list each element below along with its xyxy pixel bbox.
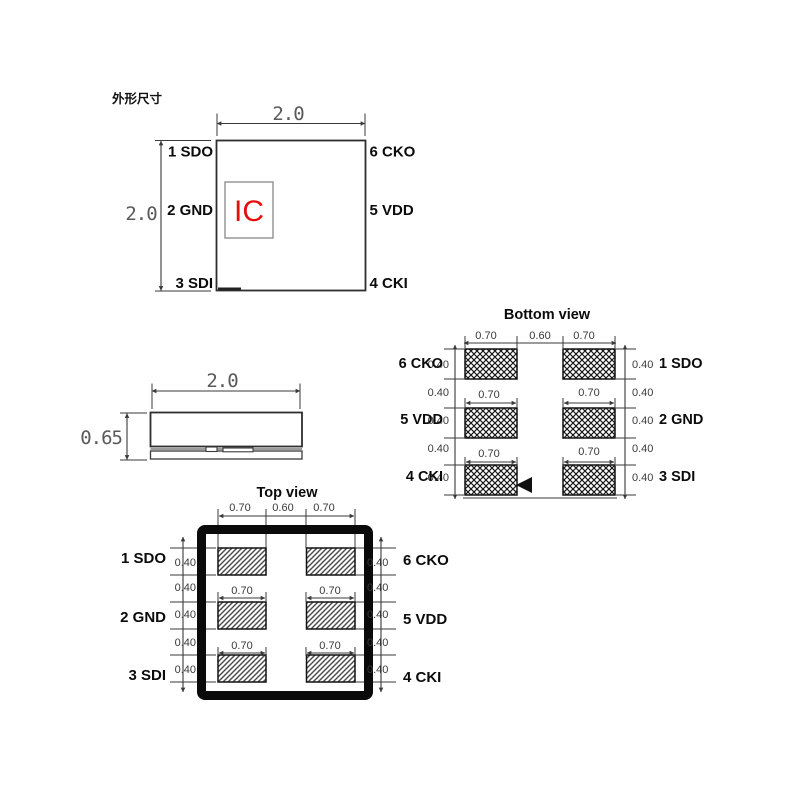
- top-pad-1-sdo: [218, 548, 266, 575]
- bottom-view-title: Bottom view: [504, 307, 591, 323]
- top-pad-3-sdi: [218, 655, 266, 682]
- top-row-dim-1: 0.70: [231, 585, 252, 597]
- bottom-pad-2-gnd: [563, 408, 615, 438]
- package-dimension-diagram: 外形尺寸 2.0 2.0 IC 1 SDO 2 GND 3 SDI 6 CKO …: [0, 0, 800, 800]
- pin1-triangle-marker: [516, 477, 532, 493]
- bottom-pad-6-cko: [465, 349, 517, 379]
- top-left-dim-1: 0.40: [175, 557, 196, 569]
- side-view: 2.0 0.65: [80, 370, 302, 460]
- outline-pin-3-sdi: 3 SDI: [175, 275, 213, 292]
- side-body: [151, 413, 303, 447]
- top-pin-4-cki: 4 CKI: [403, 669, 441, 686]
- outline-height-dim: 2.0: [125, 203, 157, 225]
- top-right-dim-3: 0.40: [367, 609, 388, 621]
- side-width-dim: 2.0: [206, 370, 238, 392]
- top-pin-3-sdi: 3 SDI: [128, 667, 166, 684]
- top-pads: [218, 548, 355, 682]
- bottom-row-dim-3: 0.70: [478, 448, 499, 460]
- bottom-pad-3-sdi: [563, 465, 615, 495]
- top-left-dim-2: 0.40: [175, 582, 196, 594]
- ic-label: IC: [234, 195, 264, 228]
- top-top-dim-3: 0.70: [313, 502, 334, 514]
- bottom-left-dim-2: 0.40: [428, 387, 449, 399]
- side-terminal-tab-1: [206, 447, 217, 452]
- bottom-top-dim-2: 0.60: [529, 330, 550, 342]
- outline-pin-6-cko: 6 CKO: [370, 144, 416, 161]
- top-pad-4-cki: [307, 655, 356, 682]
- top-right-dim-2: 0.40: [367, 582, 388, 594]
- outline-pin-5-vdd: 5 VDD: [370, 202, 414, 219]
- bottom-pin-4-cki: 4 CKI: [406, 469, 443, 485]
- top-top-dim-2: 0.60: [272, 502, 293, 514]
- top-row-dim-2: 0.70: [319, 585, 340, 597]
- outline-width-dim: 2.0: [272, 103, 304, 125]
- bottom-row-dim-4: 0.70: [578, 446, 599, 458]
- bottom-right-dim-4: 0.40: [632, 443, 653, 455]
- top-right-dim-4: 0.40: [367, 637, 388, 649]
- bottom-pin-3-sdi: 3 SDI: [659, 469, 695, 485]
- bottom-right-dim-5: 0.40: [632, 472, 653, 484]
- bottom-top-dim-1: 0.70: [475, 330, 496, 342]
- top-left-dim-5: 0.40: [175, 664, 196, 676]
- bottom-pin-2-gnd: 2 GND: [659, 412, 703, 428]
- top-left-dim-3: 0.40: [175, 609, 196, 621]
- bottom-pad-5-vdd: [465, 408, 517, 438]
- side-terminal-tab-2: [223, 448, 253, 452]
- top-row-dim-4: 0.70: [319, 640, 340, 652]
- bottom-right-dim-3: 0.40: [632, 415, 653, 427]
- outline-view: 2.0 2.0 IC 1 SDO 2 GND 3 SDI 6 CKO 5 VDD…: [125, 103, 415, 292]
- top-pin-5-vdd: 5 VDD: [403, 611, 447, 628]
- top-pin-2-gnd: 2 GND: [120, 609, 166, 626]
- outline-pin-4-cki: 4 CKI: [370, 275, 408, 292]
- sheet-title: 外形尺寸: [111, 91, 163, 106]
- outline-pin-1-sdo: 1 SDO: [168, 144, 213, 161]
- top-left-dim-4: 0.40: [175, 637, 196, 649]
- bottom-right-dim-1: 0.40: [632, 359, 653, 371]
- bottom-pad-1-sdo: [563, 349, 615, 379]
- top-pad-5-vdd: [307, 602, 356, 629]
- bottom-pin-6-cko: 6 CKO: [399, 356, 443, 372]
- bottom-pin-5-vdd: 5 VDD: [400, 412, 443, 428]
- top-view-title: Top view: [257, 485, 319, 501]
- top-top-dim-1: 0.70: [229, 502, 250, 514]
- bottom-right-dim-2: 0.40: [632, 387, 653, 399]
- top-pin-6-cko: 6 CKO: [403, 552, 449, 569]
- top-pad-2-gnd: [218, 602, 266, 629]
- top-view: Top view 0.70 0.60 0.70 0.70 0.70 0.70 0…: [120, 485, 449, 696]
- package-dimension-sheet: 外形尺寸 2.0 2.0 IC 1 SDO 2 GND 3 SDI 6 CKO …: [0, 0, 800, 800]
- bottom-left-dim-4: 0.40: [428, 443, 449, 455]
- bottom-top-dim-3: 0.70: [573, 330, 594, 342]
- top-pin-1-sdo: 1 SDO: [121, 550, 166, 567]
- top-right-dim-5: 0.40: [367, 664, 388, 676]
- bottom-view: Bottom view 0.70 0.60 0.70 0.70 0.70 0.7…: [399, 307, 704, 499]
- side-left-extension-lines: [120, 413, 147, 460]
- outline-pin-2-gnd: 2 GND: [167, 202, 213, 219]
- side-height-dim: 0.65: [80, 427, 122, 449]
- top-pad-6-cko: [307, 548, 356, 575]
- bottom-row-dim-1: 0.70: [478, 389, 499, 401]
- bottom-pin-1-sdo: 1 SDO: [659, 356, 703, 372]
- top-row-dim-3: 0.70: [231, 640, 252, 652]
- top-right-dim-1: 0.40: [367, 557, 388, 569]
- bottom-row-dim-2: 0.70: [578, 387, 599, 399]
- bottom-pads: [465, 349, 615, 495]
- bottom-pad-4-cki: [465, 465, 517, 495]
